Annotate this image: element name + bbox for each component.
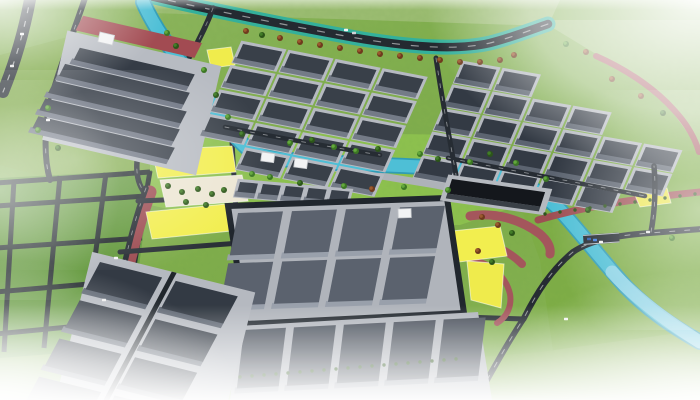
- building-roof: [283, 186, 304, 197]
- tree-highlight: [417, 55, 420, 58]
- building-roof: [230, 211, 283, 255]
- tree-highlight: [401, 184, 404, 187]
- tree-highlight: [213, 92, 216, 95]
- bush: [430, 359, 433, 362]
- tree-highlight: [287, 140, 290, 143]
- white-building: [398, 209, 411, 218]
- tree-highlight: [638, 93, 641, 96]
- car: [344, 29, 348, 31]
- tree-highlight: [331, 144, 334, 147]
- bush: [588, 206, 591, 209]
- tree-highlight: [179, 189, 182, 192]
- bush: [603, 204, 606, 207]
- tree-highlight: [467, 159, 470, 162]
- building-roof: [237, 182, 258, 193]
- bush: [238, 375, 241, 378]
- tree-highlight: [209, 191, 212, 194]
- building-roof: [237, 328, 286, 389]
- tree-highlight: [397, 53, 400, 56]
- tree-highlight: [660, 110, 663, 113]
- bush: [678, 194, 681, 197]
- tree-highlight: [475, 248, 478, 251]
- tree-highlight: [243, 28, 246, 31]
- bush: [648, 198, 651, 201]
- tree-highlight: [225, 114, 228, 117]
- bush: [573, 208, 576, 211]
- tree-highlight: [165, 183, 168, 186]
- tree-highlight: [369, 186, 372, 189]
- tree-highlight: [495, 222, 498, 225]
- bush: [250, 374, 253, 377]
- bush: [663, 196, 666, 199]
- industrial-park-render: [0, 0, 700, 400]
- bush: [358, 365, 361, 368]
- car: [20, 33, 24, 35]
- building-roof: [382, 256, 435, 300]
- bush: [310, 369, 313, 372]
- bush: [442, 358, 445, 361]
- bush: [370, 364, 373, 367]
- bush: [633, 200, 636, 203]
- scene-svg: [0, 0, 700, 400]
- white-building: [294, 158, 308, 169]
- building-roof: [338, 208, 391, 252]
- tree-highlight: [511, 52, 514, 55]
- tree-highlight: [513, 160, 516, 163]
- tree-highlight: [203, 202, 206, 205]
- building-roof: [337, 323, 386, 384]
- block-lower-row: [230, 312, 492, 400]
- tree-highlight: [375, 146, 378, 149]
- vacant-plot: [452, 226, 507, 262]
- tree-highlight: [457, 59, 460, 62]
- bush: [334, 367, 337, 370]
- tree-highlight: [317, 42, 320, 45]
- tree-highlight: [164, 30, 167, 33]
- bush: [693, 192, 696, 195]
- tree-highlight: [55, 145, 58, 148]
- building-roof: [306, 188, 327, 199]
- bush: [322, 368, 325, 371]
- tree-highlight: [249, 171, 252, 174]
- car: [352, 32, 356, 34]
- car: [587, 238, 591, 240]
- tree-highlight: [509, 230, 512, 233]
- bush: [286, 371, 289, 374]
- tree-highlight: [445, 187, 448, 190]
- tree-highlight: [309, 137, 312, 140]
- bush: [262, 373, 265, 376]
- tree-highlight: [477, 59, 480, 62]
- tree-highlight: [489, 259, 492, 262]
- tree-highlight: [297, 39, 300, 42]
- tree-highlight: [353, 148, 356, 151]
- car: [593, 239, 597, 241]
- tree-highlight: [337, 45, 340, 48]
- bush: [394, 362, 397, 365]
- building-roof: [387, 320, 436, 381]
- car: [599, 241, 603, 243]
- tree-highlight: [357, 48, 360, 51]
- building-roof: [328, 258, 381, 302]
- tree-highlight: [479, 214, 482, 217]
- tree-highlight: [497, 57, 500, 60]
- building-roof: [284, 210, 337, 254]
- tree-highlight: [437, 57, 440, 60]
- tree-highlight: [377, 51, 380, 54]
- car: [114, 257, 118, 259]
- bush: [298, 370, 301, 373]
- tree-highlight: [487, 151, 490, 154]
- car: [46, 119, 50, 121]
- building-roof: [274, 260, 327, 304]
- bush: [558, 210, 561, 213]
- tree-highlight: [669, 235, 672, 238]
- white-building: [261, 152, 275, 163]
- building-roof: [287, 325, 336, 386]
- car: [10, 65, 14, 67]
- tree-highlight: [183, 199, 186, 202]
- tree-highlight: [341, 183, 344, 186]
- bush: [543, 212, 546, 215]
- car: [646, 231, 650, 233]
- tree-highlight: [435, 156, 438, 159]
- tree-highlight: [195, 186, 198, 189]
- bush: [274, 372, 277, 375]
- tree-highlight: [259, 32, 262, 35]
- tree-highlight: [585, 207, 588, 210]
- tree-highlight: [417, 151, 420, 154]
- bush: [382, 363, 385, 366]
- scene-root: [0, 0, 700, 400]
- tree-highlight: [201, 67, 204, 70]
- tree-highlight: [239, 131, 242, 134]
- tree-highlight: [35, 127, 38, 130]
- tree-highlight: [543, 176, 546, 179]
- tree-highlight: [297, 180, 300, 183]
- bush: [418, 360, 421, 363]
- bush: [406, 361, 409, 364]
- tree-highlight: [45, 105, 48, 108]
- building-roof: [437, 317, 486, 378]
- bush: [346, 366, 349, 369]
- car: [564, 318, 568, 320]
- building-roof: [260, 184, 281, 195]
- bush: [618, 202, 621, 205]
- tree-highlight: [173, 43, 176, 46]
- tree-highlight: [277, 35, 280, 38]
- bush: [454, 357, 457, 360]
- tree-highlight: [583, 49, 586, 52]
- car: [102, 299, 106, 301]
- tree-highlight: [609, 76, 612, 79]
- tree-highlight: [221, 187, 224, 190]
- tree-highlight: [267, 174, 270, 177]
- tree-highlight: [563, 41, 566, 44]
